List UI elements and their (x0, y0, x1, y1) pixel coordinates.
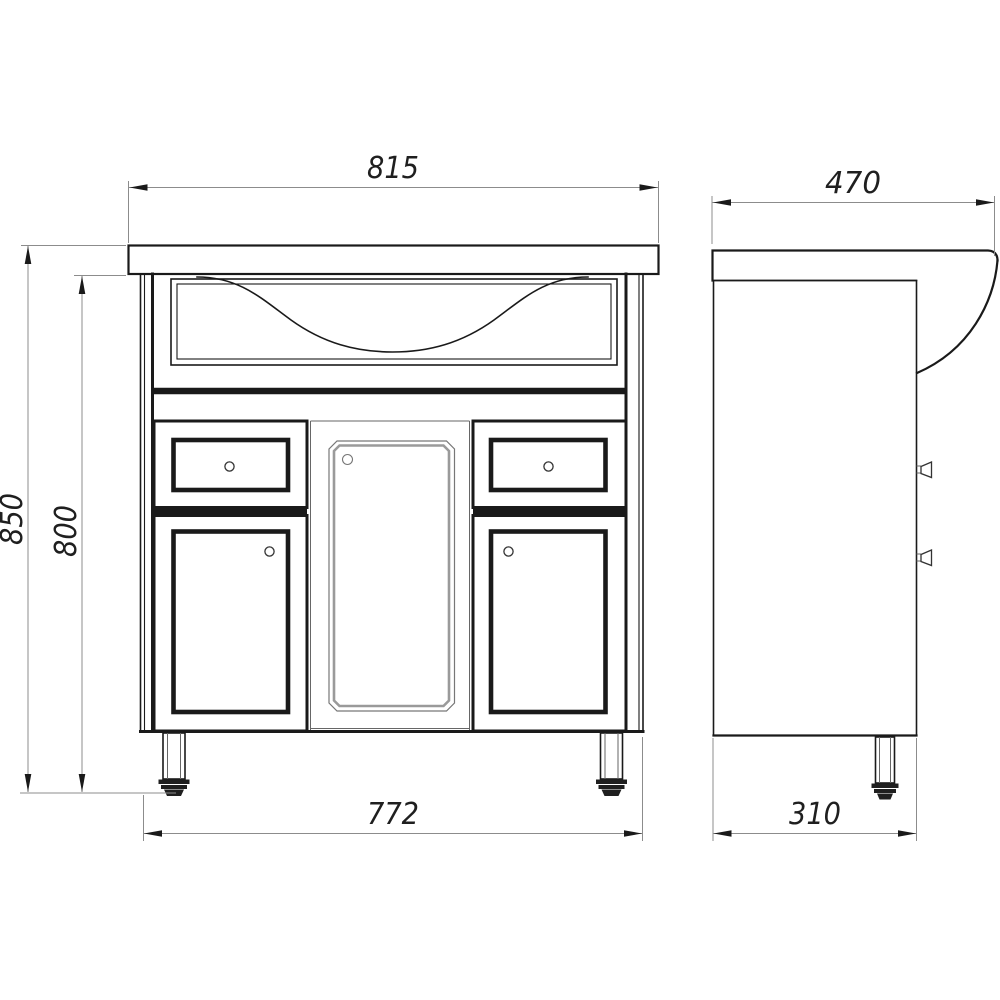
door-right (473, 516, 626, 732)
dim-label-cabinet-width: 772 (367, 797, 419, 832)
front-view (129, 246, 659, 797)
door-left-panel (174, 532, 289, 713)
arrowhead (79, 774, 86, 792)
foot-front-right-base (602, 790, 622, 797)
arrowhead (25, 774, 32, 792)
front-drawers (154, 421, 626, 512)
leg-side (876, 737, 895, 783)
arrowhead (25, 246, 32, 264)
leg-front-left (163, 733, 185, 779)
sink-basin-curve (197, 277, 588, 352)
foot-front-right-band2 (599, 785, 625, 789)
arrowhead (640, 184, 658, 191)
dim-label-cabinet-depth: 310 (789, 797, 841, 832)
foot-side-base (877, 794, 893, 800)
arrowhead (130, 184, 148, 191)
apron-frame-inner (177, 284, 611, 359)
dimensions: 815 470 850 800 (0, 151, 995, 841)
door-center-panel (334, 446, 449, 707)
arrowhead (144, 830, 162, 837)
door-right-panel (491, 532, 606, 713)
dimension-countertop-width: 815 (129, 151, 659, 243)
side-knob-upper (921, 462, 932, 478)
side-knobs (917, 462, 932, 566)
dim-label-countertop-width: 815 (367, 151, 419, 186)
side-cabinet-body (714, 281, 917, 736)
side-knob-lower (921, 550, 932, 566)
dim-label-countertop-depth: 470 (825, 166, 881, 201)
dim-label-cabinet-height: 800 (49, 505, 84, 557)
door-center-knob (343, 455, 353, 465)
foot-front-right-band1 (596, 780, 627, 785)
technical-drawing-canvas: 815 470 850 800 (0, 0, 1000, 1000)
arrowhead (976, 199, 994, 206)
arrowhead (624, 830, 642, 837)
front-countertop (129, 246, 659, 275)
leg-front-right (601, 733, 623, 779)
arrowhead (898, 830, 916, 837)
front-legs (159, 733, 628, 796)
front-sink-apron (153, 277, 627, 391)
side-countertop (713, 251, 998, 281)
drawer-right-knob (544, 462, 553, 471)
foot-front-left-band1 (159, 780, 190, 785)
door-right-knob (504, 547, 513, 556)
side-leg (872, 737, 899, 800)
foot-side-band1 (872, 784, 899, 789)
door-left (154, 516, 307, 732)
arrowhead (713, 199, 731, 206)
arrowhead (79, 276, 86, 294)
dim-label-overall-height: 850 (0, 493, 30, 545)
drawer-left-knob (225, 462, 234, 471)
foot-front-left-band2 (161, 785, 187, 789)
door-left-knob (265, 547, 274, 556)
vanity-technical-drawing: 815 470 850 800 (0, 0, 1000, 1000)
foot-side-band2 (874, 789, 896, 793)
front-cabinet-body (141, 274, 644, 732)
dimension-countertop-depth: 470 (712, 166, 995, 256)
side-view (713, 251, 998, 800)
dimension-cabinet-width: 772 (144, 737, 643, 841)
front-doors (154, 441, 626, 731)
door-center-panel-edge (329, 441, 455, 711)
arrowhead (714, 830, 732, 837)
side-basin-profile-curve (917, 261, 998, 374)
